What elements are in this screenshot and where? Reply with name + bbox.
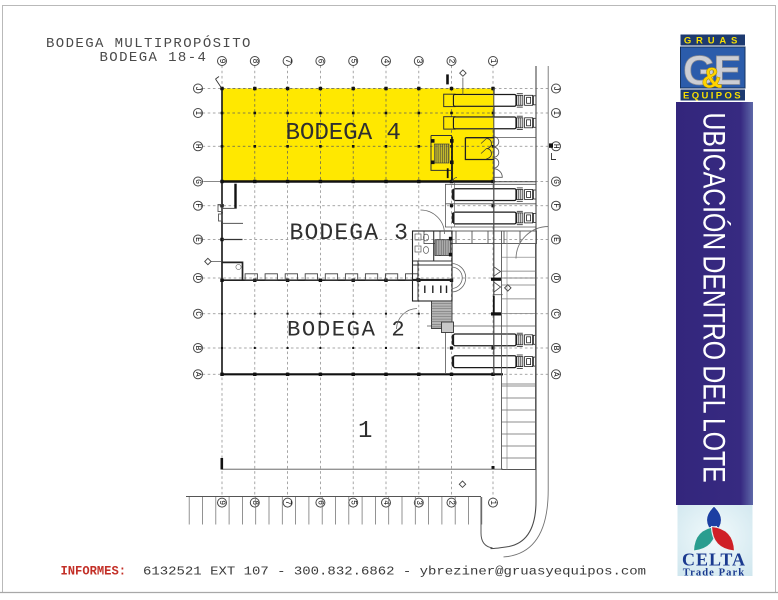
svg-text:G: G [551,179,560,184]
svg-text:6: 6 [316,500,325,505]
svg-text:A: A [193,372,202,377]
svg-text:1: 1 [358,418,372,445]
svg-text:GRUAS: GRUAS [684,35,742,46]
svg-text:6: 6 [316,59,325,64]
svg-text:BODEGA 4: BODEGA 4 [286,120,401,147]
svg-text:I: I [193,111,202,116]
svg-text:CELTA: CELTA [682,550,746,570]
svg-text:D: D [193,276,202,281]
svg-text:C: C [551,311,560,316]
svg-text:UBICACIÓN DENTRO DEL LOTE: UBICACIÓN DENTRO DEL LOTE [696,113,732,483]
svg-text:2: 2 [447,500,456,505]
svg-text:BODEGA 2: BODEGA 2 [287,317,406,342]
svg-text:F: F [551,203,560,208]
svg-text:7: 7 [283,500,292,505]
svg-text:7: 7 [283,59,292,64]
svg-text:9: 9 [217,59,226,64]
svg-text:C: C [193,311,202,316]
svg-text:B: B [193,346,202,351]
svg-text:BODEGA 18-4: BODEGA 18-4 [100,50,208,66]
svg-text:B: B [551,346,560,351]
svg-text:4: 4 [381,59,390,64]
svg-text:8: 8 [250,500,259,505]
svg-text:2: 2 [447,59,456,64]
svg-text:EQUIPOS: EQUIPOS [683,90,743,101]
svg-text:H: H [193,144,202,149]
svg-text:A: A [551,372,560,377]
svg-text:9: 9 [217,500,226,505]
svg-text:5: 5 [348,59,357,64]
svg-text:1: 1 [488,500,497,505]
svg-text:3: 3 [414,59,423,64]
svg-text:J: J [551,86,560,91]
svg-text:1: 1 [488,59,497,64]
svg-text:E: E [551,237,560,242]
svg-text:BODEGA 3: BODEGA 3 [290,220,410,246]
svg-text:E: E [193,237,202,242]
svg-text:I: I [551,111,560,116]
svg-text:G: G [193,179,202,184]
svg-text:F: F [193,203,202,208]
svg-text:5: 5 [348,500,357,505]
svg-text:D: D [551,276,560,281]
svg-text:8: 8 [250,59,259,64]
svg-text:J: J [193,86,202,91]
svg-text:INFORMES:: INFORMES: [61,564,127,579]
svg-text:Trade Park: Trade Park [683,568,745,579]
svg-text:6132521 EXT 107 - 300.832.6862: 6132521 EXT 107 - 300.832.6862 - ybrezin… [143,564,646,578]
